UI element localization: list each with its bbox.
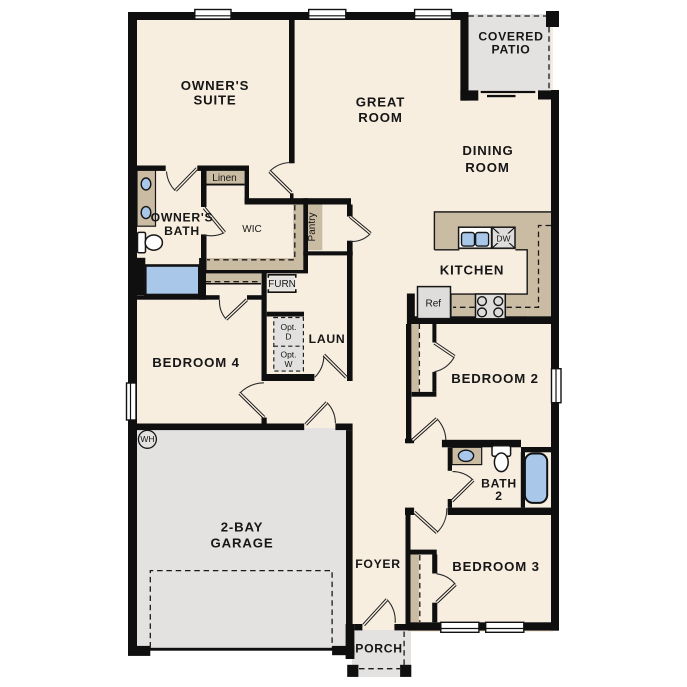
svg-text:FOYER: FOYER bbox=[355, 557, 400, 571]
svg-text:GARAGE: GARAGE bbox=[211, 536, 274, 551]
svg-text:WH: WH bbox=[140, 434, 154, 444]
svg-text:Ref: Ref bbox=[426, 299, 442, 310]
svg-text:PORCH: PORCH bbox=[355, 642, 403, 656]
svg-text:KITCHEN: KITCHEN bbox=[440, 263, 505, 278]
svg-text:OWNER'S: OWNER'S bbox=[151, 211, 214, 225]
svg-text:Pantry: Pantry bbox=[307, 213, 318, 242]
svg-text:GREAT: GREAT bbox=[356, 94, 405, 109]
svg-text:BEDROOM 4: BEDROOM 4 bbox=[152, 355, 240, 370]
svg-text:Linen: Linen bbox=[212, 173, 236, 184]
svg-text:LAUN: LAUN bbox=[309, 332, 346, 346]
svg-text:D: D bbox=[285, 332, 291, 342]
svg-text:BEDROOM 3: BEDROOM 3 bbox=[452, 559, 540, 574]
svg-text:BATH: BATH bbox=[164, 224, 200, 238]
svg-text:WIC: WIC bbox=[242, 224, 261, 235]
svg-text:Opt.: Opt. bbox=[280, 322, 296, 332]
svg-text:PATIO: PATIO bbox=[492, 43, 531, 57]
svg-text:W: W bbox=[284, 359, 292, 369]
svg-text:ROOM: ROOM bbox=[358, 110, 402, 125]
svg-text:DINING: DINING bbox=[462, 143, 513, 158]
svg-text:2: 2 bbox=[495, 489, 502, 503]
svg-text:OWNER'S: OWNER'S bbox=[181, 78, 249, 93]
svg-text:SUITE: SUITE bbox=[193, 93, 236, 108]
svg-text:BEDROOM 2: BEDROOM 2 bbox=[451, 371, 539, 386]
svg-text:2-BAY: 2-BAY bbox=[221, 520, 264, 535]
svg-text:DW: DW bbox=[496, 234, 510, 244]
svg-text:Opt.: Opt. bbox=[280, 350, 296, 360]
svg-text:FURN: FURN bbox=[268, 279, 296, 290]
svg-text:COVERED: COVERED bbox=[478, 30, 543, 44]
svg-text:ROOM: ROOM bbox=[465, 160, 509, 175]
